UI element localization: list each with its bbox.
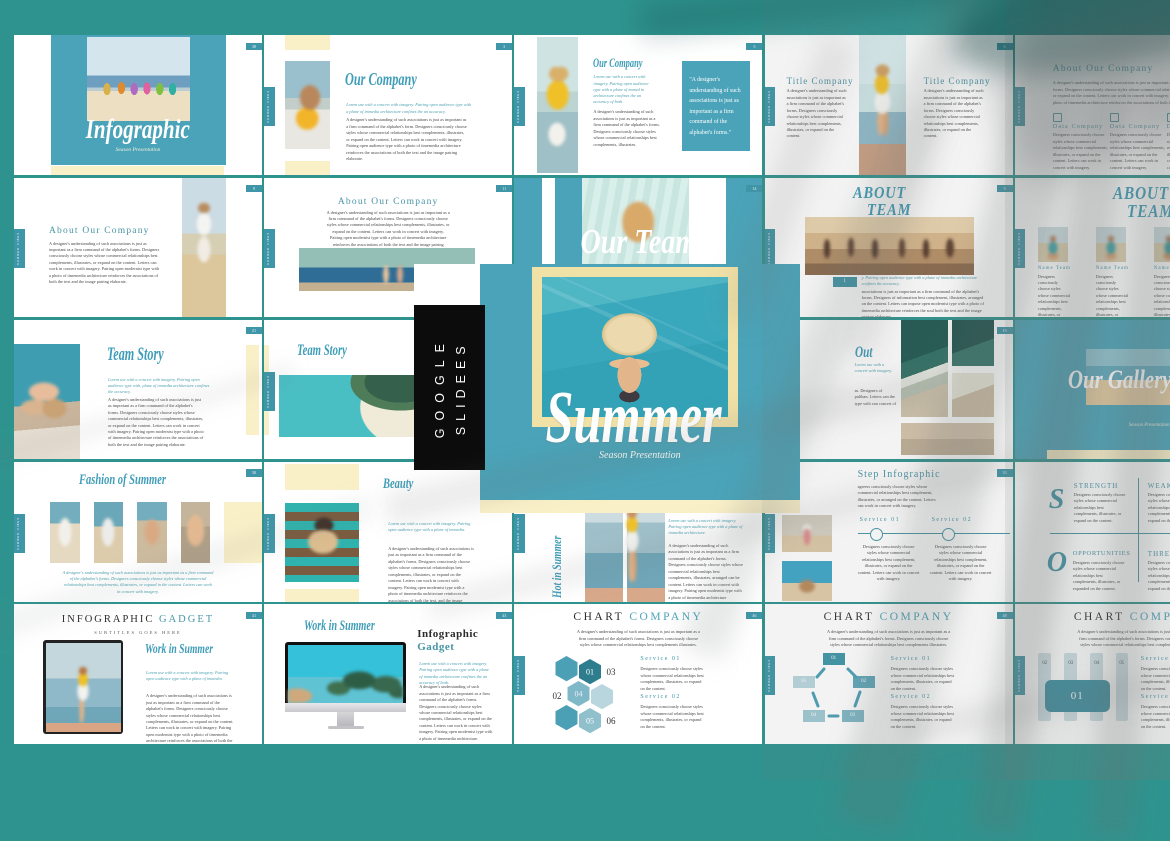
svg-text:05: 05 <box>586 717 594 726</box>
svg-text:04: 04 <box>575 690 583 699</box>
svg-text:01: 01 <box>586 668 594 677</box>
svg-text:06: 06 <box>607 716 617 726</box>
svg-text:02: 02 <box>553 691 562 701</box>
svg-text:03: 03 <box>607 667 617 677</box>
